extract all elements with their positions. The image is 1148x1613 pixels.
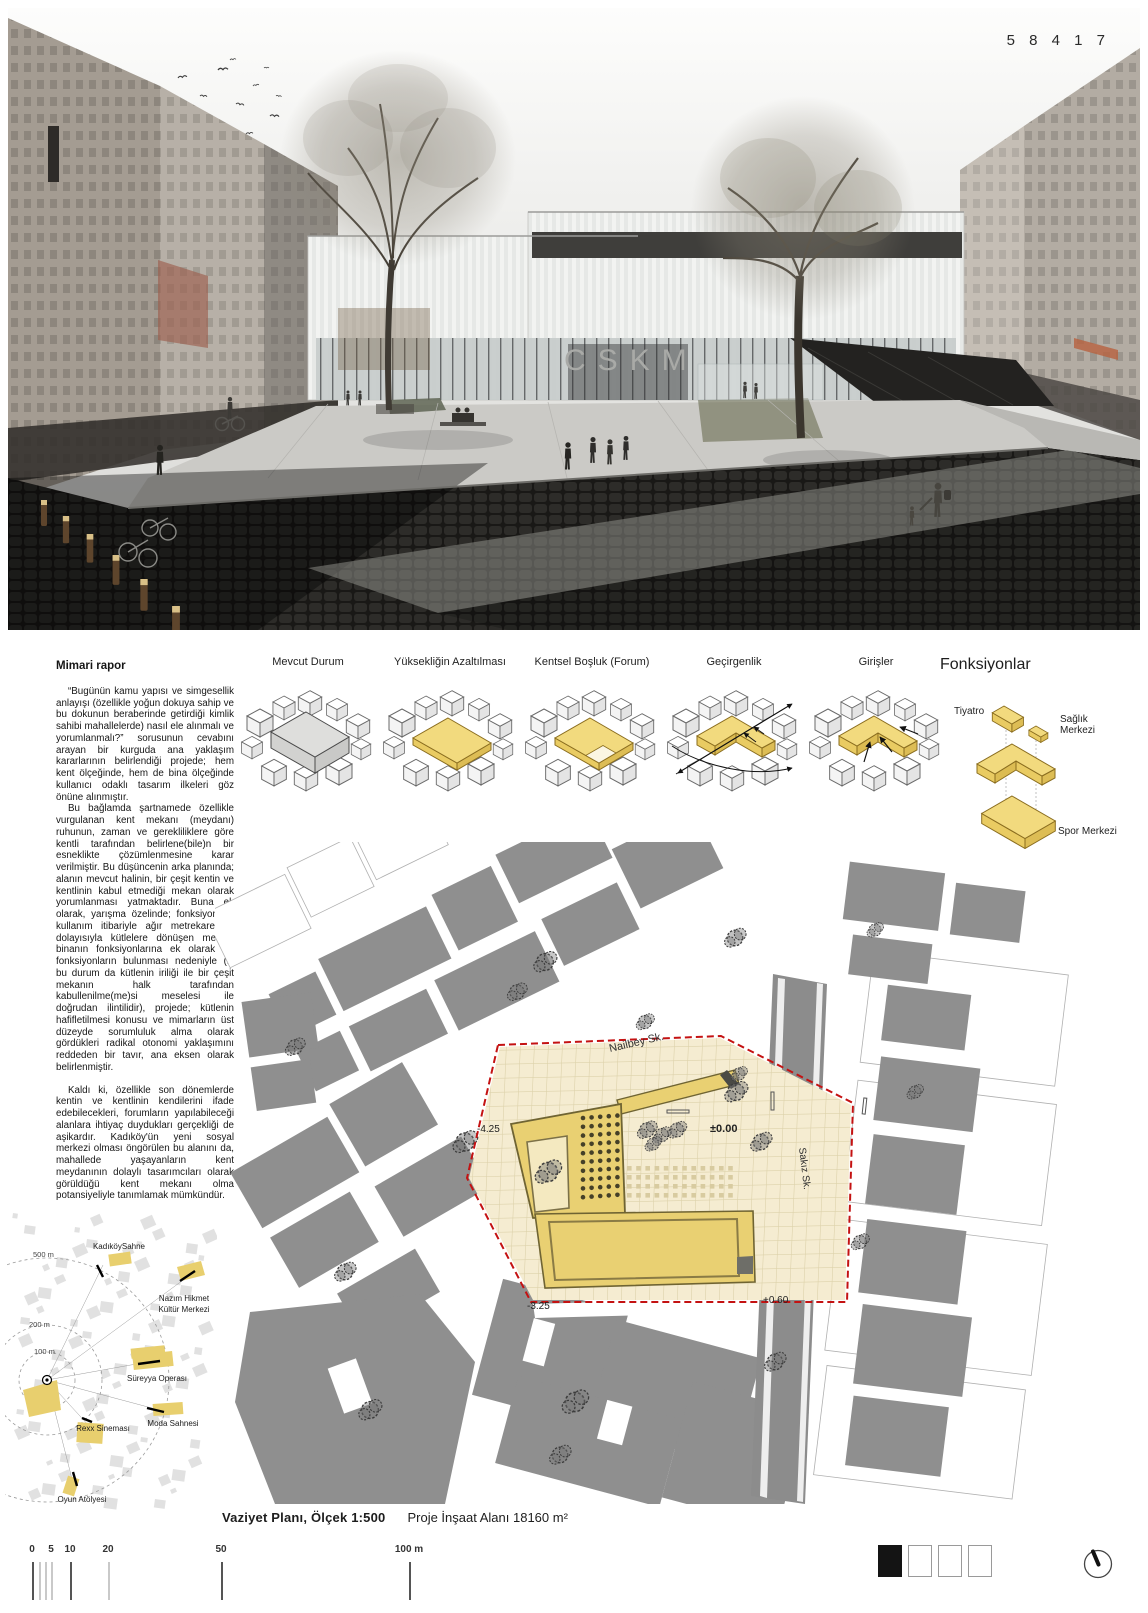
entry-code: 5 8 4 1 7 <box>1007 32 1110 49</box>
diagram-graphic <box>234 678 382 800</box>
report-paragraph: Kaldı ki, özellikle son dönemlerde kenti… <box>56 1085 234 1203</box>
report-paragraph: Bu bağlamda şartnamede özellikle vurgula… <box>56 803 234 1073</box>
competition-board: CSKM <box>0 0 1148 1613</box>
radius-label: 200 m <box>29 1320 50 1329</box>
diagram-fonksiyonlar: Fonksiyonlar <box>940 656 1140 854</box>
building-sign: CSKM <box>564 344 699 377</box>
hero-rendering: CSKM <box>8 8 1140 630</box>
diagram-kentsel-bosluk: Kentsel Boşluk (Forum) <box>518 656 666 805</box>
diagram-label: Mevcut Durum <box>234 656 382 668</box>
site-plan: Nailbey Sk. Sakız Sk. -4.25 ±0.00 -3.25 … <box>215 842 1075 1509</box>
location-map-graphic: 500 m 200 m 100 m KadıköySahne Nazım Hik… <box>5 1205 217 1510</box>
site-plan-map: Nailbey Sk. Sakız Sk. -4.25 ±0.00 -3.25 … <box>215 842 1075 1504</box>
diagram-graphic <box>802 678 950 800</box>
radius-label: 500 m <box>33 1250 54 1259</box>
plan-caption: Vaziyet Planı, Ölçek 1:500 Proje İnşaat … <box>222 1510 568 1525</box>
diagram-graphic <box>376 678 524 800</box>
function-label-tiyatro: Tiyatro <box>954 706 985 717</box>
level-label: -4.25 <box>477 1124 500 1135</box>
scale-tick <box>45 1562 47 1600</box>
scale-tick-label: 100 m <box>395 1544 423 1555</box>
venue-label: Rexx Sineması <box>76 1424 130 1433</box>
diagram-graphic <box>518 678 666 800</box>
scale-tick-label: 0 <box>29 1544 35 1555</box>
scale-tick-label: 20 <box>102 1544 113 1555</box>
venue-label: Oyun Atölyesi <box>58 1495 107 1504</box>
diagram-graphic: Tiyatro Sağlık Merkezi Spor Merkezi <box>940 674 1140 849</box>
diagram-yukseklik: Yüksekliğin Azaltılması <box>376 656 524 805</box>
function-label-saglik: Merkezi <box>1060 725 1095 736</box>
sheet-indicator-square <box>908 1545 932 1577</box>
diagram-label: Fonksiyonlar <box>940 656 1031 673</box>
venue-label: Moda Sahnesi <box>147 1419 198 1428</box>
scale-tick <box>409 1562 411 1600</box>
location-map: 500 m 200 m 100 m KadıköySahne Nazım Hik… <box>5 1205 217 1515</box>
sheet-indicator-square <box>878 1545 902 1577</box>
diagram-label: Yüksekliğin Azaltılması <box>376 656 524 668</box>
level-label: -3.25 <box>527 1301 550 1312</box>
scale-tick-label: 10 <box>64 1544 75 1555</box>
scale-tick-label: 50 <box>215 1544 226 1555</box>
report-title: Mimari rapor <box>56 660 234 674</box>
level-label: ±0.00 <box>710 1123 737 1135</box>
scale-tick <box>39 1562 41 1600</box>
sheet-indicator-square <box>938 1545 962 1577</box>
radius-label: 100 m <box>34 1347 55 1356</box>
sheet-indicator-square <box>968 1545 992 1577</box>
function-label-spor: Spor Merkezi <box>1058 826 1117 837</box>
scale-tick <box>221 1562 223 1600</box>
architectural-report: Mimari rapor “Bugünün kamu yapısı ve sim… <box>56 660 234 1202</box>
hero-scene: CSKM <box>8 8 1140 630</box>
function-label-saglik: Sağlık <box>1060 714 1089 725</box>
scale-tick <box>32 1562 34 1600</box>
venue-label: KadıköySahne <box>93 1242 146 1251</box>
scale-tick <box>70 1562 72 1600</box>
scale-tick <box>108 1562 110 1600</box>
north-arrow-icon <box>1080 1546 1116 1582</box>
level-label: +0.60 <box>763 1295 789 1306</box>
venue-label: Nazım Hikmet <box>159 1294 210 1303</box>
report-paragraph: “Bugünün kamu yapısı ve simgesellik anla… <box>56 686 234 804</box>
venue-label: Süreyya Operası <box>127 1374 187 1383</box>
scale-tick-label: 5 <box>48 1544 54 1555</box>
venue-label: Kültür Merkezi <box>158 1305 209 1314</box>
diagram-mevcut-durum: Mevcut Durum <box>234 656 382 805</box>
sheet-indicator <box>878 1545 992 1577</box>
site-origin-dot <box>45 1378 48 1381</box>
diagram-girisler: Girişler <box>802 656 950 805</box>
plan-title: Vaziyet Planı, Ölçek 1:500 <box>222 1510 385 1525</box>
plan-area: Proje İnşaat Alanı 18160 m² <box>407 1510 567 1525</box>
scale-tick <box>51 1562 53 1600</box>
diagram-label: Girişler <box>802 656 950 668</box>
diagram-label: Geçirgenlik <box>660 656 808 668</box>
diagram-gecirgenlik: Geçirgenlik <box>660 656 808 805</box>
diagram-graphic <box>660 678 808 800</box>
diagram-label: Kentsel Boşluk (Forum) <box>518 656 666 668</box>
